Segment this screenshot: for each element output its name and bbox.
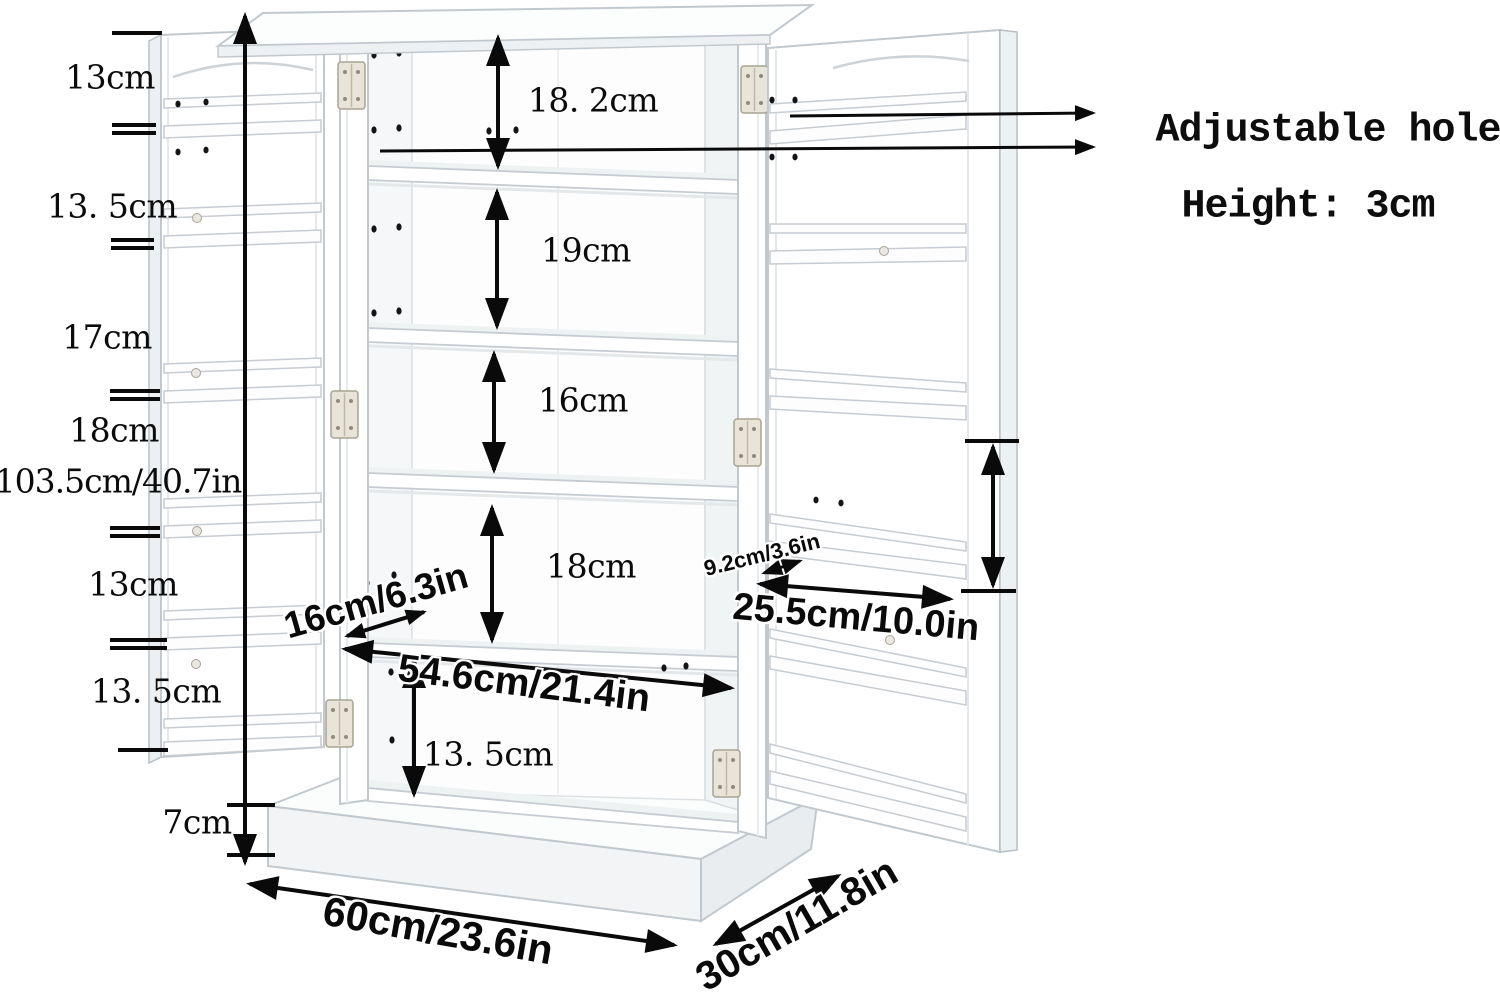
dim-overall-height-label: 103.5cm/40.7in [0, 462, 241, 501]
dim-left-section1-label: 13cm [65, 58, 155, 97]
dim-base-height-label: 7cm [162, 803, 231, 842]
interior-right-wall [705, 27, 738, 810]
dim-left-section3-label: 17cm [62, 318, 152, 357]
callout-adjustable-hole-line1: Adjustable hole [1155, 109, 1500, 154]
dim-left-section6-label: 13. 5cm [91, 672, 221, 711]
dim-interior-section2-label: 19cm [541, 231, 631, 270]
dim-interior-section1-label: 18. 2cm [528, 81, 658, 120]
dim-interior-section5-label: 13. 5cm [423, 735, 553, 774]
cabinet-body [326, 13, 768, 838]
hinge [713, 750, 740, 797]
pantry-cabinet-dimension-diagram: 13cm 13. 5cm 17cm 18cm 103.5cm/40.7in 13… [0, 0, 1500, 987]
dim-interior-section3-label: 16cm [538, 381, 628, 420]
left-door [149, 28, 324, 763]
hinge [331, 391, 358, 438]
dim-interior-section4-label: 18cm [546, 547, 636, 586]
hinge [741, 66, 768, 113]
dim-left-section5-label: 13cm [88, 565, 178, 604]
dim-left-section4-label: 18cm [69, 411, 159, 450]
hinge [734, 419, 761, 466]
dim-left-section2-label: 13. 5cm [47, 187, 177, 226]
callout-adjustable-hole-line2: Height: 3cm [1181, 185, 1434, 230]
hinge [338, 62, 365, 109]
hinge [326, 700, 353, 747]
